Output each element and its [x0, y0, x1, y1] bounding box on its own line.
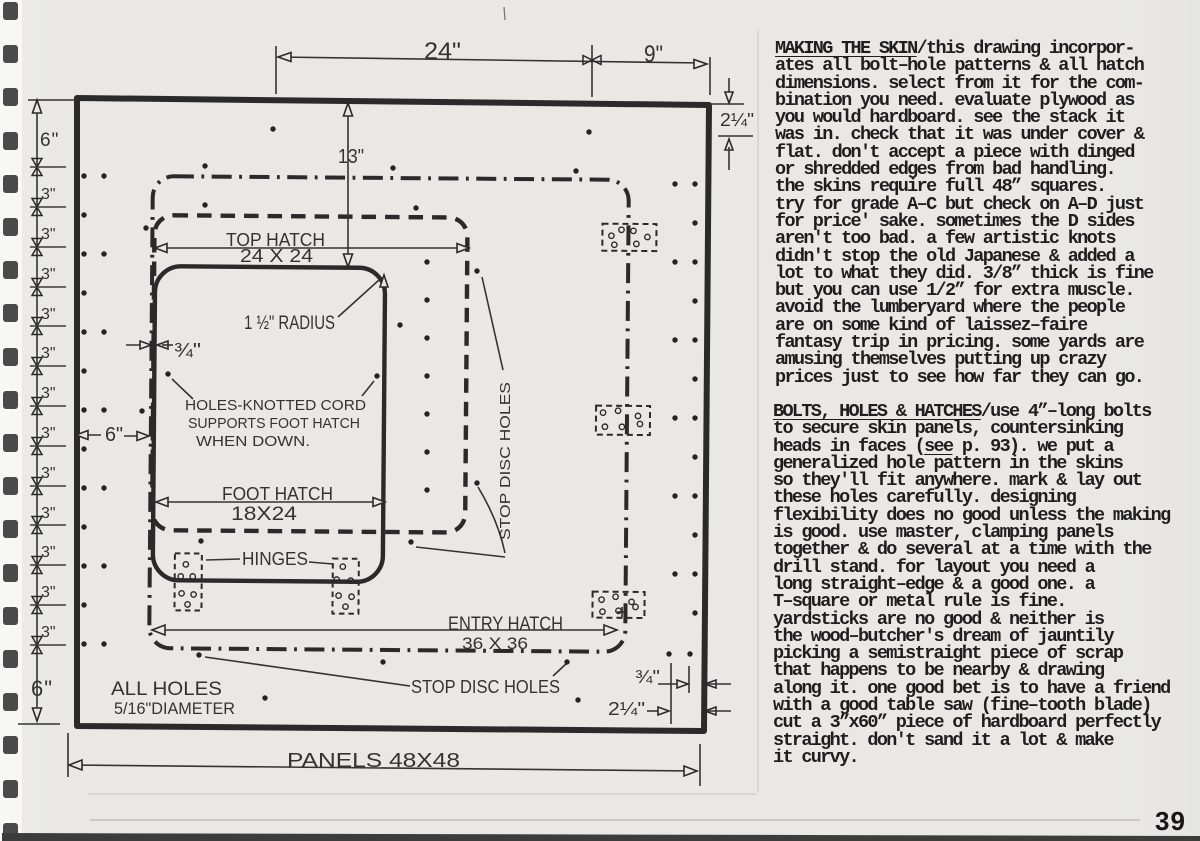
svg-text:24 X 24: 24 X 24 — [240, 246, 313, 266]
svg-text:¾": ¾" — [174, 340, 201, 362]
svg-text:13": 13" — [338, 146, 364, 168]
svg-text:6": 6" — [31, 676, 53, 701]
svg-text:STOP DISC HOLES: STOP DISC HOLES — [411, 677, 560, 697]
svg-text:2¼": 2¼" — [608, 699, 645, 719]
svg-text:3": 3" — [41, 465, 56, 482]
svg-text:18X24: 18X24 — [231, 504, 298, 525]
svg-text:3": 3" — [41, 226, 56, 243]
svg-text:3": 3" — [41, 425, 56, 442]
svg-text:3": 3" — [41, 186, 56, 203]
svg-text:HINGES: HINGES — [242, 549, 308, 569]
svg-text:3": 3" — [41, 306, 56, 323]
svg-text:PANELS 48X48: PANELS 48X48 — [287, 750, 460, 772]
svg-text:2¼": 2¼" — [720, 110, 754, 130]
svg-text:HOLES-KNOTTED CORD: HOLES-KNOTTED CORD — [185, 397, 366, 414]
svg-text:¾": ¾" — [635, 667, 660, 687]
svg-text:ALL HOLES: ALL HOLES — [111, 679, 222, 700]
svg-text:5/16"DIAMETER: 5/16"DIAMETER — [114, 699, 235, 718]
svg-text:STOP DISC HOLES: STOP DISC HOLES — [497, 382, 514, 540]
svg-text:3": 3" — [41, 584, 56, 601]
svg-text:24": 24" — [424, 38, 461, 65]
svg-text:3": 3" — [41, 266, 56, 283]
svg-text:WHEN DOWN.: WHEN DOWN. — [196, 433, 310, 450]
svg-text:36 X 36: 36 X 36 — [462, 634, 528, 653]
svg-text:6": 6" — [105, 424, 123, 446]
svg-text:1 ½" RADIUS: 1 ½" RADIUS — [244, 313, 335, 334]
svg-text:3": 3" — [41, 385, 56, 402]
svg-text:3": 3" — [41, 345, 56, 362]
svg-text:ENTRY HATCH: ENTRY HATCH — [448, 614, 563, 635]
svg-text:9": 9" — [644, 41, 663, 68]
svg-text:SUPPORTS FOOT HATCH: SUPPORTS FOOT HATCH — [188, 415, 360, 432]
svg-text:3": 3" — [41, 505, 56, 522]
svg-text:3": 3" — [41, 544, 56, 561]
svg-text:3": 3" — [41, 624, 56, 641]
svg-text:FOOT HATCH: FOOT HATCH — [222, 484, 333, 504]
svg-text:6": 6" — [40, 130, 59, 151]
